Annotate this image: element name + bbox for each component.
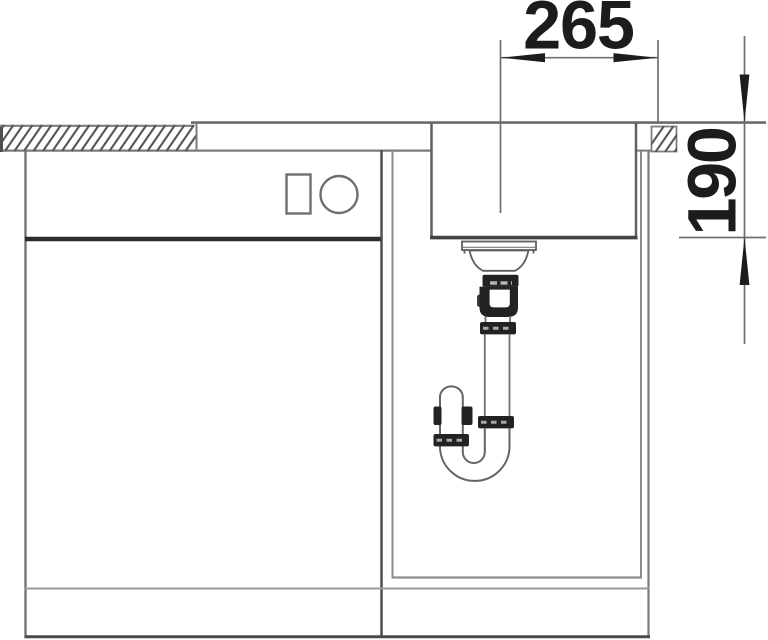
svg-text:190: 190 xyxy=(674,128,751,235)
